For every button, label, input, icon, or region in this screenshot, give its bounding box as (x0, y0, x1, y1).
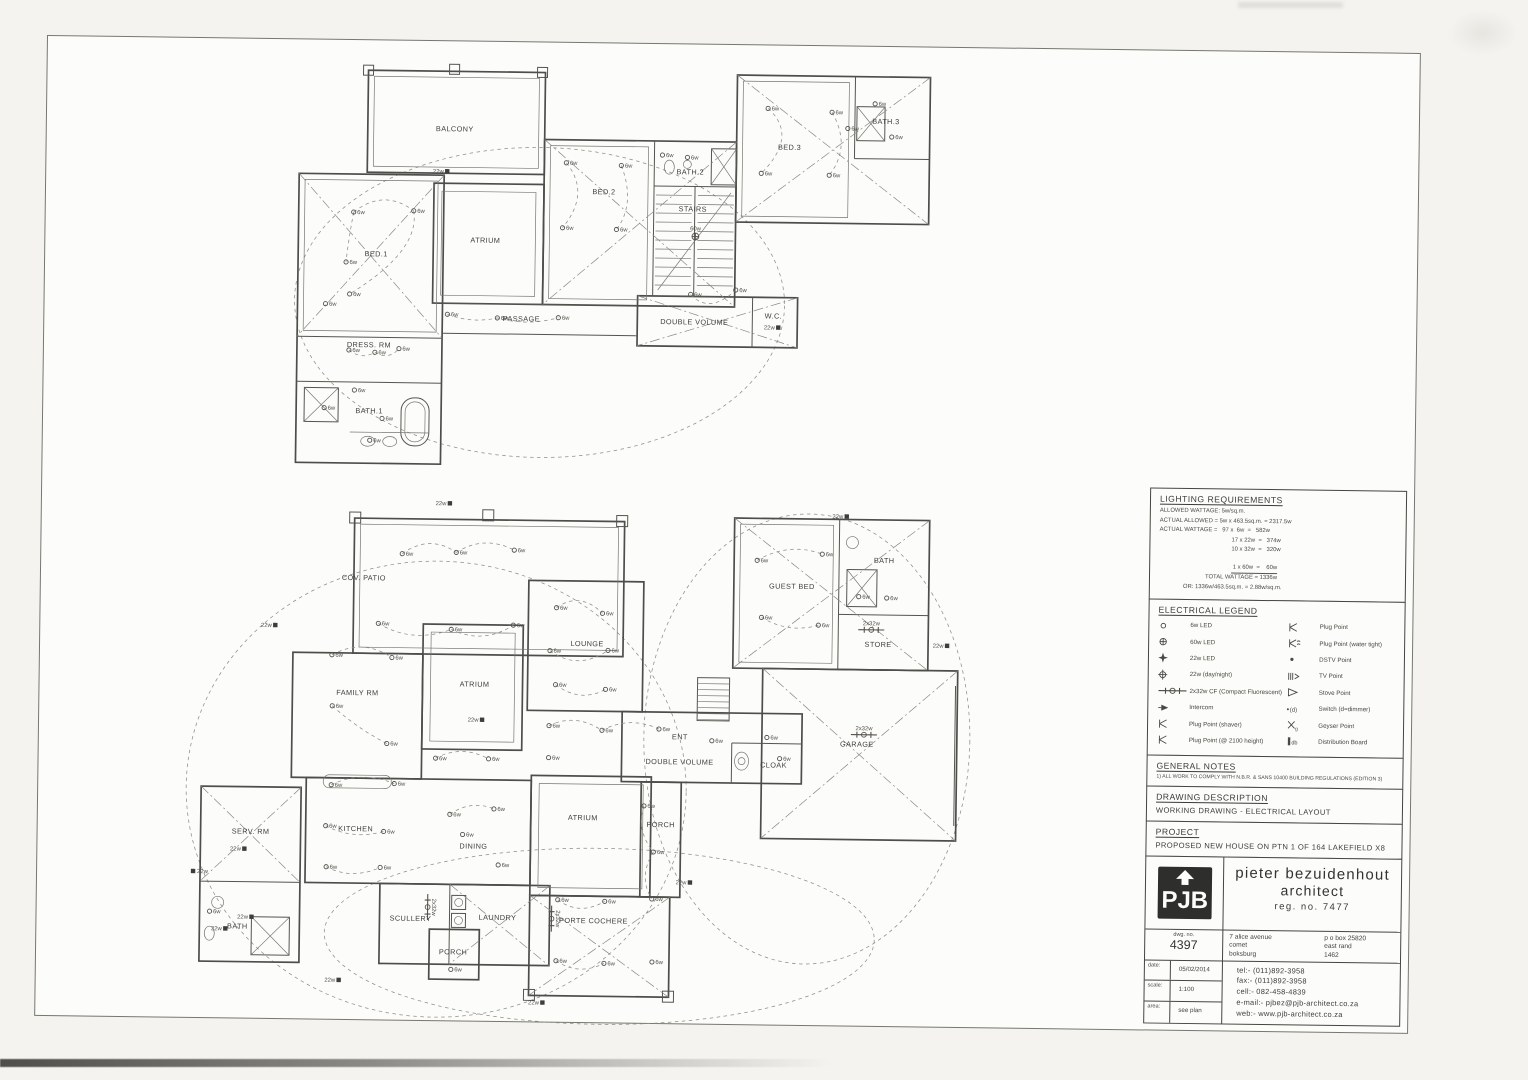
lower-plan-labels: COV. PATIOFAMILY RMATRIUMLOUNGEGUEST BED… (189, 498, 951, 1012)
legend-icon-cell (1157, 701, 1189, 713)
light-label: 6w (390, 742, 398, 748)
room-label: DOUBLE VOLUME (645, 757, 713, 767)
light-label: 22w (211, 926, 223, 932)
room-label: W.C. (765, 311, 783, 320)
legend-label: Distribution Board (1318, 739, 1367, 747)
light-label: 6w (518, 548, 526, 554)
plug-symbol-icon (1157, 718, 1171, 730)
light-label: 6w (657, 850, 665, 856)
light-label: 6w (570, 161, 578, 167)
drawing-description-section: DRAWING DESCRIPTION WORKING DRAWING - EL… (1146, 785, 1403, 824)
light-label: 6w (608, 899, 616, 905)
light-label: 6w (439, 756, 447, 762)
legend-row: Intercom (1157, 699, 1286, 717)
light-label: 6w (765, 171, 773, 177)
light-label: 6w (879, 102, 887, 108)
firm-name-cell: pieter bezuidenhout architect reg. no. 7… (1223, 857, 1401, 931)
lower-floor-plan: COV. PATIOFAMILY RMATRIUMLOUNGEGUEST BED… (178, 486, 975, 1033)
legend-icon-cell (1157, 734, 1189, 746)
legend-row: Stove Point (1287, 684, 1395, 702)
light-label: 6w (350, 260, 358, 266)
light-label: 2x32w (430, 899, 436, 917)
light-label: 6w (609, 687, 617, 693)
light-label: 6w (455, 627, 463, 633)
legend-icon-cell (1287, 670, 1319, 682)
room-label: KITCHEN (338, 824, 373, 833)
general-notes-section: GENERAL NOTES 1) ALL WORK TO COMPLY WITH… (1146, 754, 1403, 789)
light-label: 6w (352, 348, 360, 354)
architect-name: pieter bezuidenhout (1224, 864, 1401, 883)
legend-label: 6w LED (1190, 622, 1212, 629)
room-label: LOUNGE (570, 639, 603, 648)
light-label: 6w (772, 106, 780, 112)
legend-icon-cell: g (1286, 719, 1318, 731)
room-label: SERV. RM (232, 826, 270, 835)
light-label: 6w (562, 316, 570, 322)
room-label: BATH.2 (677, 167, 705, 176)
light-label: 6w (833, 173, 841, 179)
led60-symbol-icon (1158, 636, 1172, 648)
light-label: 6w (715, 739, 723, 745)
room-label: PORTE COCHERE (559, 916, 628, 926)
light-label: 6w (552, 756, 560, 762)
legend-label: 22w (day/night) (1190, 671, 1232, 679)
light-label: 6w (402, 347, 410, 353)
light-label: 6w (561, 898, 569, 904)
light-label: 22w (324, 978, 336, 984)
svg-text:PJB: PJB (1161, 886, 1208, 914)
light-label: 6w (335, 783, 343, 789)
stove-symbol-icon (1287, 687, 1301, 699)
light-label: 22w (433, 169, 445, 175)
legend-label: TV Point (1319, 673, 1343, 680)
contact-line: web:- www.pjb-architect.co.za (1236, 1008, 1399, 1021)
room-label: BED.3 (778, 143, 801, 152)
legend-left-column: 6w LED60w LED22w LED22w (day/night)2x32w… (1157, 617, 1288, 750)
drawing-sheet: BALCONYBED.1ATRIUMBED.2STAIRSBATH.2BED.3… (34, 35, 1421, 1034)
light-label: 22w (436, 501, 448, 507)
light-label: 6w (502, 863, 510, 869)
electrical-legend-section: ELECTRICAL LEGEND 6w LED60w LED22w LED22… (1147, 598, 1406, 758)
daynight-symbol-icon (1158, 668, 1172, 680)
legend-row: Plug Point (water tight) (1287, 635, 1395, 653)
light-label: 22w (832, 514, 844, 520)
light-label: 6w (655, 960, 663, 966)
upper-plan-labels: BALCONYBED.1ATRIUMBED.2STAIRSBATH.2BED.3… (322, 95, 904, 452)
light-label: 6w (357, 210, 365, 216)
legend-icon-cell: db (1286, 736, 1318, 748)
legend-label: 60w LED (1190, 639, 1215, 646)
light-label: 6w (862, 595, 870, 601)
legend-row: Plug Point (@ 2100 height) (1157, 732, 1286, 750)
drawing-number-cell: dwg. no. 4397 (1145, 929, 1223, 960)
svg-text:(d): (d) (1290, 707, 1297, 713)
room-label: LAUNDRY (479, 913, 517, 922)
light-label: 60w (690, 226, 702, 232)
light-label: 2x32w (554, 910, 560, 928)
description-text: WORKING DRAWING - ELECTRICAL LAYOUT (1156, 805, 1393, 817)
light-label: 6w (329, 824, 337, 830)
light-label: 6w (497, 807, 505, 813)
db-symbol-icon: db (1286, 736, 1300, 748)
light-label: 6w (836, 110, 844, 116)
legend-label: Plug Point (@ 2100 height) (1189, 737, 1263, 745)
light-label: 6w (620, 228, 628, 234)
notes-heading: GENERAL NOTES (1156, 760, 1393, 773)
room-label: BATH.1 (355, 406, 383, 415)
meta-row: date:05/02/2014 (1145, 960, 1222, 982)
light-label: 6w (378, 350, 386, 356)
legend-icon-cell: (d) (1286, 703, 1318, 715)
legend-row: 2x32w CF (Compact Fluorescent) (1157, 683, 1286, 701)
legend-icon-cell (1157, 685, 1189, 697)
room-label: PORCH (439, 947, 467, 956)
light-label: 6w (330, 865, 338, 871)
light-label: 6w (662, 727, 670, 733)
light-label: 6w (559, 683, 567, 689)
plug-symbol-icon (1157, 734, 1171, 746)
contact-cell: tel:- (011)892-3958fax:- (011)892-3958ce… (1222, 961, 1400, 1025)
light-label: 6w (358, 388, 366, 394)
light-label: 6w (517, 623, 525, 629)
room-label: STORE (865, 640, 892, 649)
light-label: 6w (770, 736, 778, 742)
legend-label: 2x32w CF (Compact Fluorescent) (1189, 688, 1282, 696)
meta-row: scale:1:100 (1144, 981, 1221, 1003)
light-label: 6w (417, 209, 425, 215)
light-label: 22w (528, 1000, 540, 1006)
light-label: 22w (676, 880, 688, 886)
light-label: 6w (373, 438, 381, 444)
room-label: STAIRS (679, 204, 707, 213)
legend-icon-cell (1158, 668, 1190, 680)
legend-label: Stove Point (1319, 689, 1351, 696)
light-label: 6w (611, 648, 619, 654)
light-label: 6w (553, 649, 561, 655)
switch-symbol-icon: (d) (1286, 703, 1300, 715)
light-label: 6w (353, 292, 361, 298)
upper-plan-walls (292, 62, 930, 470)
dwg-no-value: 4397 (1145, 937, 1222, 952)
project-section: PROJECT PROPOSED NEW HOUSE ON PTN 1 OF 1… (1145, 820, 1402, 859)
legend-row: 6w LED (1158, 617, 1287, 635)
light-label: 6w (826, 552, 834, 558)
light-label: 6w (492, 757, 500, 763)
light-label: 6w (647, 804, 655, 810)
svg-text:g: g (1295, 726, 1298, 731)
room-label: BATH (874, 556, 895, 565)
light-label: 6w (761, 558, 769, 564)
light-label: 6w (454, 967, 462, 973)
room-label: ATRIUM (470, 236, 500, 245)
room-label: BED.1 (365, 249, 388, 258)
light-label: 22w (237, 915, 249, 921)
room-label: COV. PATIO (342, 573, 386, 583)
legend-label: DSTV Point (1319, 657, 1351, 664)
light-label: 6w (694, 292, 702, 298)
light-label: 2x32w (855, 726, 873, 732)
legend-label: 22w LED (1190, 655, 1215, 662)
scan-paper-edge-shadow (0, 1059, 830, 1067)
room-label: SCULLERY (390, 914, 432, 924)
plugwt-symbol-icon (1287, 637, 1301, 649)
light-label: 6w (560, 606, 568, 612)
room-label: BALCONY (436, 124, 474, 133)
room-label: ATRIUM (568, 813, 598, 822)
legend-row: Plug Point (shaver) (1157, 715, 1286, 733)
light-label: 6w (607, 961, 615, 967)
light-label: 6w (387, 830, 395, 836)
light-label: 6w (566, 226, 574, 232)
lighting-line: 1 x 60w = 60w (1231, 563, 1277, 574)
light-label: 6w (895, 135, 903, 141)
legend-icon-cell (1158, 652, 1190, 664)
room-label: BATH (227, 921, 248, 930)
light-label: 6w (783, 757, 791, 763)
room-label: PORCH (646, 820, 674, 829)
legend-label: Plug Point (water tight) (1319, 640, 1382, 648)
room-label: ENT (672, 732, 688, 741)
light-label: 6w (890, 596, 898, 602)
room-label: ATRIUM (460, 679, 490, 688)
light-label: 6w (605, 728, 613, 734)
room-label: BATH.3 (872, 117, 900, 126)
geyser-symbol-icon: g (1286, 719, 1300, 731)
architect-title: architect (1224, 881, 1401, 899)
intercom-symbol-icon (1157, 701, 1171, 713)
legend-icon-cell (1158, 619, 1190, 631)
light-label: 6w (739, 288, 747, 294)
description-heading: DRAWING DESCRIPTION (1156, 791, 1393, 804)
light-label: 6w (453, 812, 461, 818)
cf-symbol-icon (1157, 685, 1187, 697)
legend-icon-cell (1288, 621, 1320, 633)
legend-row: (d)Switch (d=dimmer) (1286, 701, 1394, 719)
light-label: 6w (691, 155, 699, 161)
dstv-symbol-icon (1287, 654, 1301, 666)
meta-row: area:see plan (1144, 1001, 1221, 1023)
legend-row: dbDistribution Board (1286, 734, 1394, 752)
legend-row: 60w LED (1158, 633, 1287, 651)
note-line: 1) ALL WORK TO COMPLY WITH N.B.R. & SANS… (1156, 773, 1393, 782)
light-label: 6w (329, 302, 337, 308)
title-block: LIGHTING REQUIREMENTS ALLOWED WATTAGE: 5… (1143, 488, 1407, 1026)
light-label: 6w (336, 704, 344, 710)
light-label: 22w (933, 644, 945, 650)
light-label: 6w (625, 164, 633, 170)
legend-row: 22w LED (1158, 650, 1287, 668)
light-label: 6w (385, 416, 393, 422)
light-label: 6w (395, 656, 403, 662)
legend-icon-cell (1158, 636, 1190, 648)
light-label: 6w (460, 550, 468, 556)
led22-symbol-icon (1158, 652, 1172, 664)
light-label: 6w (851, 127, 859, 133)
room-label: GUEST BED (769, 581, 815, 591)
legend-label: Plug Point (1320, 624, 1348, 631)
light-label: 6w (466, 833, 474, 839)
room-label: FAMILY RM (336, 688, 378, 698)
light-label: 6w (335, 653, 343, 659)
lighting-requirements-section: LIGHTING REQUIREMENTS ALLOWED WATTAGE: 5… (1149, 487, 1407, 602)
light-label: 22w (230, 846, 242, 852)
scan-smudge (1448, 10, 1518, 56)
legend-label: Intercom (1189, 704, 1213, 711)
light-label: 2x32w (863, 621, 881, 627)
scanned-drawing-page: BALCONYBED.1ATRIUMBED.2STAIRSBATH.2BED.3… (0, 0, 1528, 1080)
room-label: BED.2 (592, 187, 615, 196)
light-label: 6w (382, 621, 390, 627)
firm-logo-cell: PJB (1145, 856, 1224, 929)
legend-row: 22w (day/night) (1158, 666, 1287, 684)
legend-icon-cell (1157, 718, 1189, 730)
room-label: GARAGE (840, 739, 874, 748)
light-label: 6w (451, 312, 459, 318)
led6-symbol-icon (1158, 619, 1172, 631)
lighting-heading: LIGHTING REQUIREMENTS (1160, 494, 1397, 507)
scan-smudge (1238, 2, 1343, 8)
light-label: 6w (328, 406, 336, 412)
light-label: 22w (261, 623, 273, 629)
light-label: 6w (406, 552, 414, 558)
light-label: 6w (384, 865, 392, 871)
address-cell: 7 alice avenuecometboksburg p o box 2582… (1223, 930, 1400, 962)
legend-row: gGeyser Point (1286, 717, 1394, 735)
light-label: 6w (398, 782, 406, 788)
street-address: 7 alice avenuecometboksburg (1229, 933, 1324, 958)
legend-label: Switch (d=dimmer) (1319, 706, 1371, 714)
postal-address: p o box 25820east rand1462 (1324, 934, 1366, 959)
pjb-logo-icon: PJB (1156, 865, 1213, 920)
project-text: PROPOSED NEW HOUSE ON PTN 1 OF 164 LAKEF… (1155, 840, 1392, 852)
project-heading: PROJECT (1156, 826, 1393, 839)
light-label: 22w (197, 869, 209, 875)
lighting-lines: ALLOWED WATTAGE: 5w/sq.m.ACTUAL ALLOWED … (1159, 507, 1397, 596)
plug-symbol-icon (1288, 621, 1302, 633)
lighting-line: 10 x 32w = 320w (1231, 546, 1396, 558)
light-label: 6w (501, 316, 509, 322)
legend-label: Geyser Point (1318, 722, 1354, 729)
room-label: DINING (459, 841, 487, 850)
light-label: 6w (765, 615, 773, 621)
registration-number: reg. no. 7477 (1224, 900, 1401, 913)
legend-heading: ELECTRICAL LEGEND (1159, 604, 1396, 617)
light-label: 22w (468, 718, 480, 724)
light-label: 6w (552, 724, 560, 730)
legend-right-column: Plug PointPlug Point (water tight)DSTV P… (1286, 619, 1395, 752)
lower-plan-walls (183, 506, 973, 1029)
architect-block: PJB pieter bezuidenhout architect reg. n… (1143, 855, 1402, 1026)
legend-row: DSTV Point (1287, 652, 1395, 670)
legend-label: Plug Point (shaver) (1189, 721, 1242, 729)
legend-icon-cell (1287, 637, 1319, 649)
light-label: 6w (822, 623, 830, 629)
light-label: 6w (606, 611, 614, 617)
svg-text:db: db (1292, 741, 1298, 747)
legend-icon-cell (1287, 687, 1319, 699)
light-label: 22w (764, 325, 776, 331)
upper-floor-plan: BALCONYBED.1ATRIUMBED.2STAIRSBATH.2BED.3… (287, 59, 952, 478)
lighting-line: OR: 1336w/463.5sq.m. = 2.88w/sq.m. (1183, 583, 1396, 595)
tv-symbol-icon (1287, 670, 1301, 682)
light-label: 6w (666, 153, 674, 159)
legend-icon-cell (1287, 654, 1319, 666)
room-label: DOUBLE VOLUME (660, 317, 728, 327)
meta-cell: date:05/02/2014scale:1:100area:see plan (1144, 960, 1223, 1023)
light-label: 6w (559, 959, 567, 965)
legend-row: Plug Point (1288, 619, 1396, 637)
legend-row: TV Point (1287, 668, 1395, 686)
light-label: 6w (655, 897, 663, 903)
light-label: 6w (213, 909, 221, 915)
